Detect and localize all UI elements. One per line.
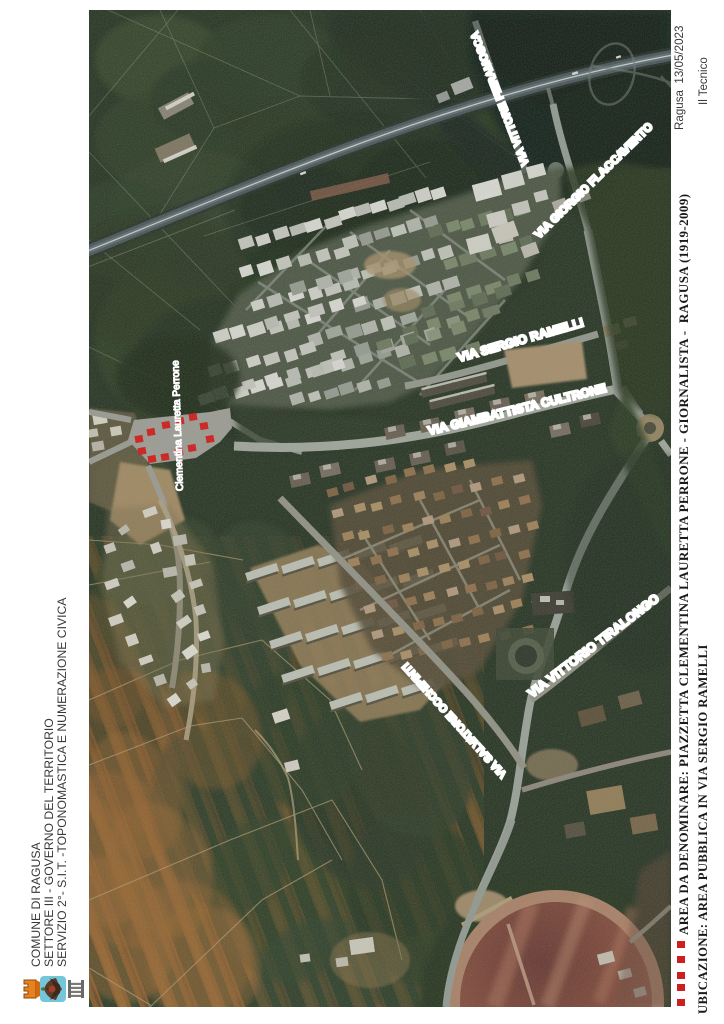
svg-text:SERVIZIO 2°- S.I.T. -TOPONOMAS: SERVIZIO 2°- S.I.T. -TOPONOMASTICA E NUM… [55,597,69,967]
svg-text:Ragusa 13/05/2023: Ragusa 13/05/2023 [673,26,686,130]
svg-text:SETTORE III - GOVERNO DEL TERR: SETTORE III - GOVERNO DEL TERRITORIO [42,718,56,967]
svg-text:AREA DA DENOMINARE: PIAZZETTA: AREA DA DENOMINARE: PIAZZETTA CLEMENTINA… [676,194,691,935]
svg-text:UBICAZIONE: AREA PUBBLICA IN V: UBICAZIONE: AREA PUBBLICA IN VIA SERGIO … [696,644,710,1014]
svg-text:COMUNE DI RAGUSA: COMUNE DI RAGUSA [29,842,43,967]
svg-text:Il Tecnico: Il Tecnico [698,57,710,105]
